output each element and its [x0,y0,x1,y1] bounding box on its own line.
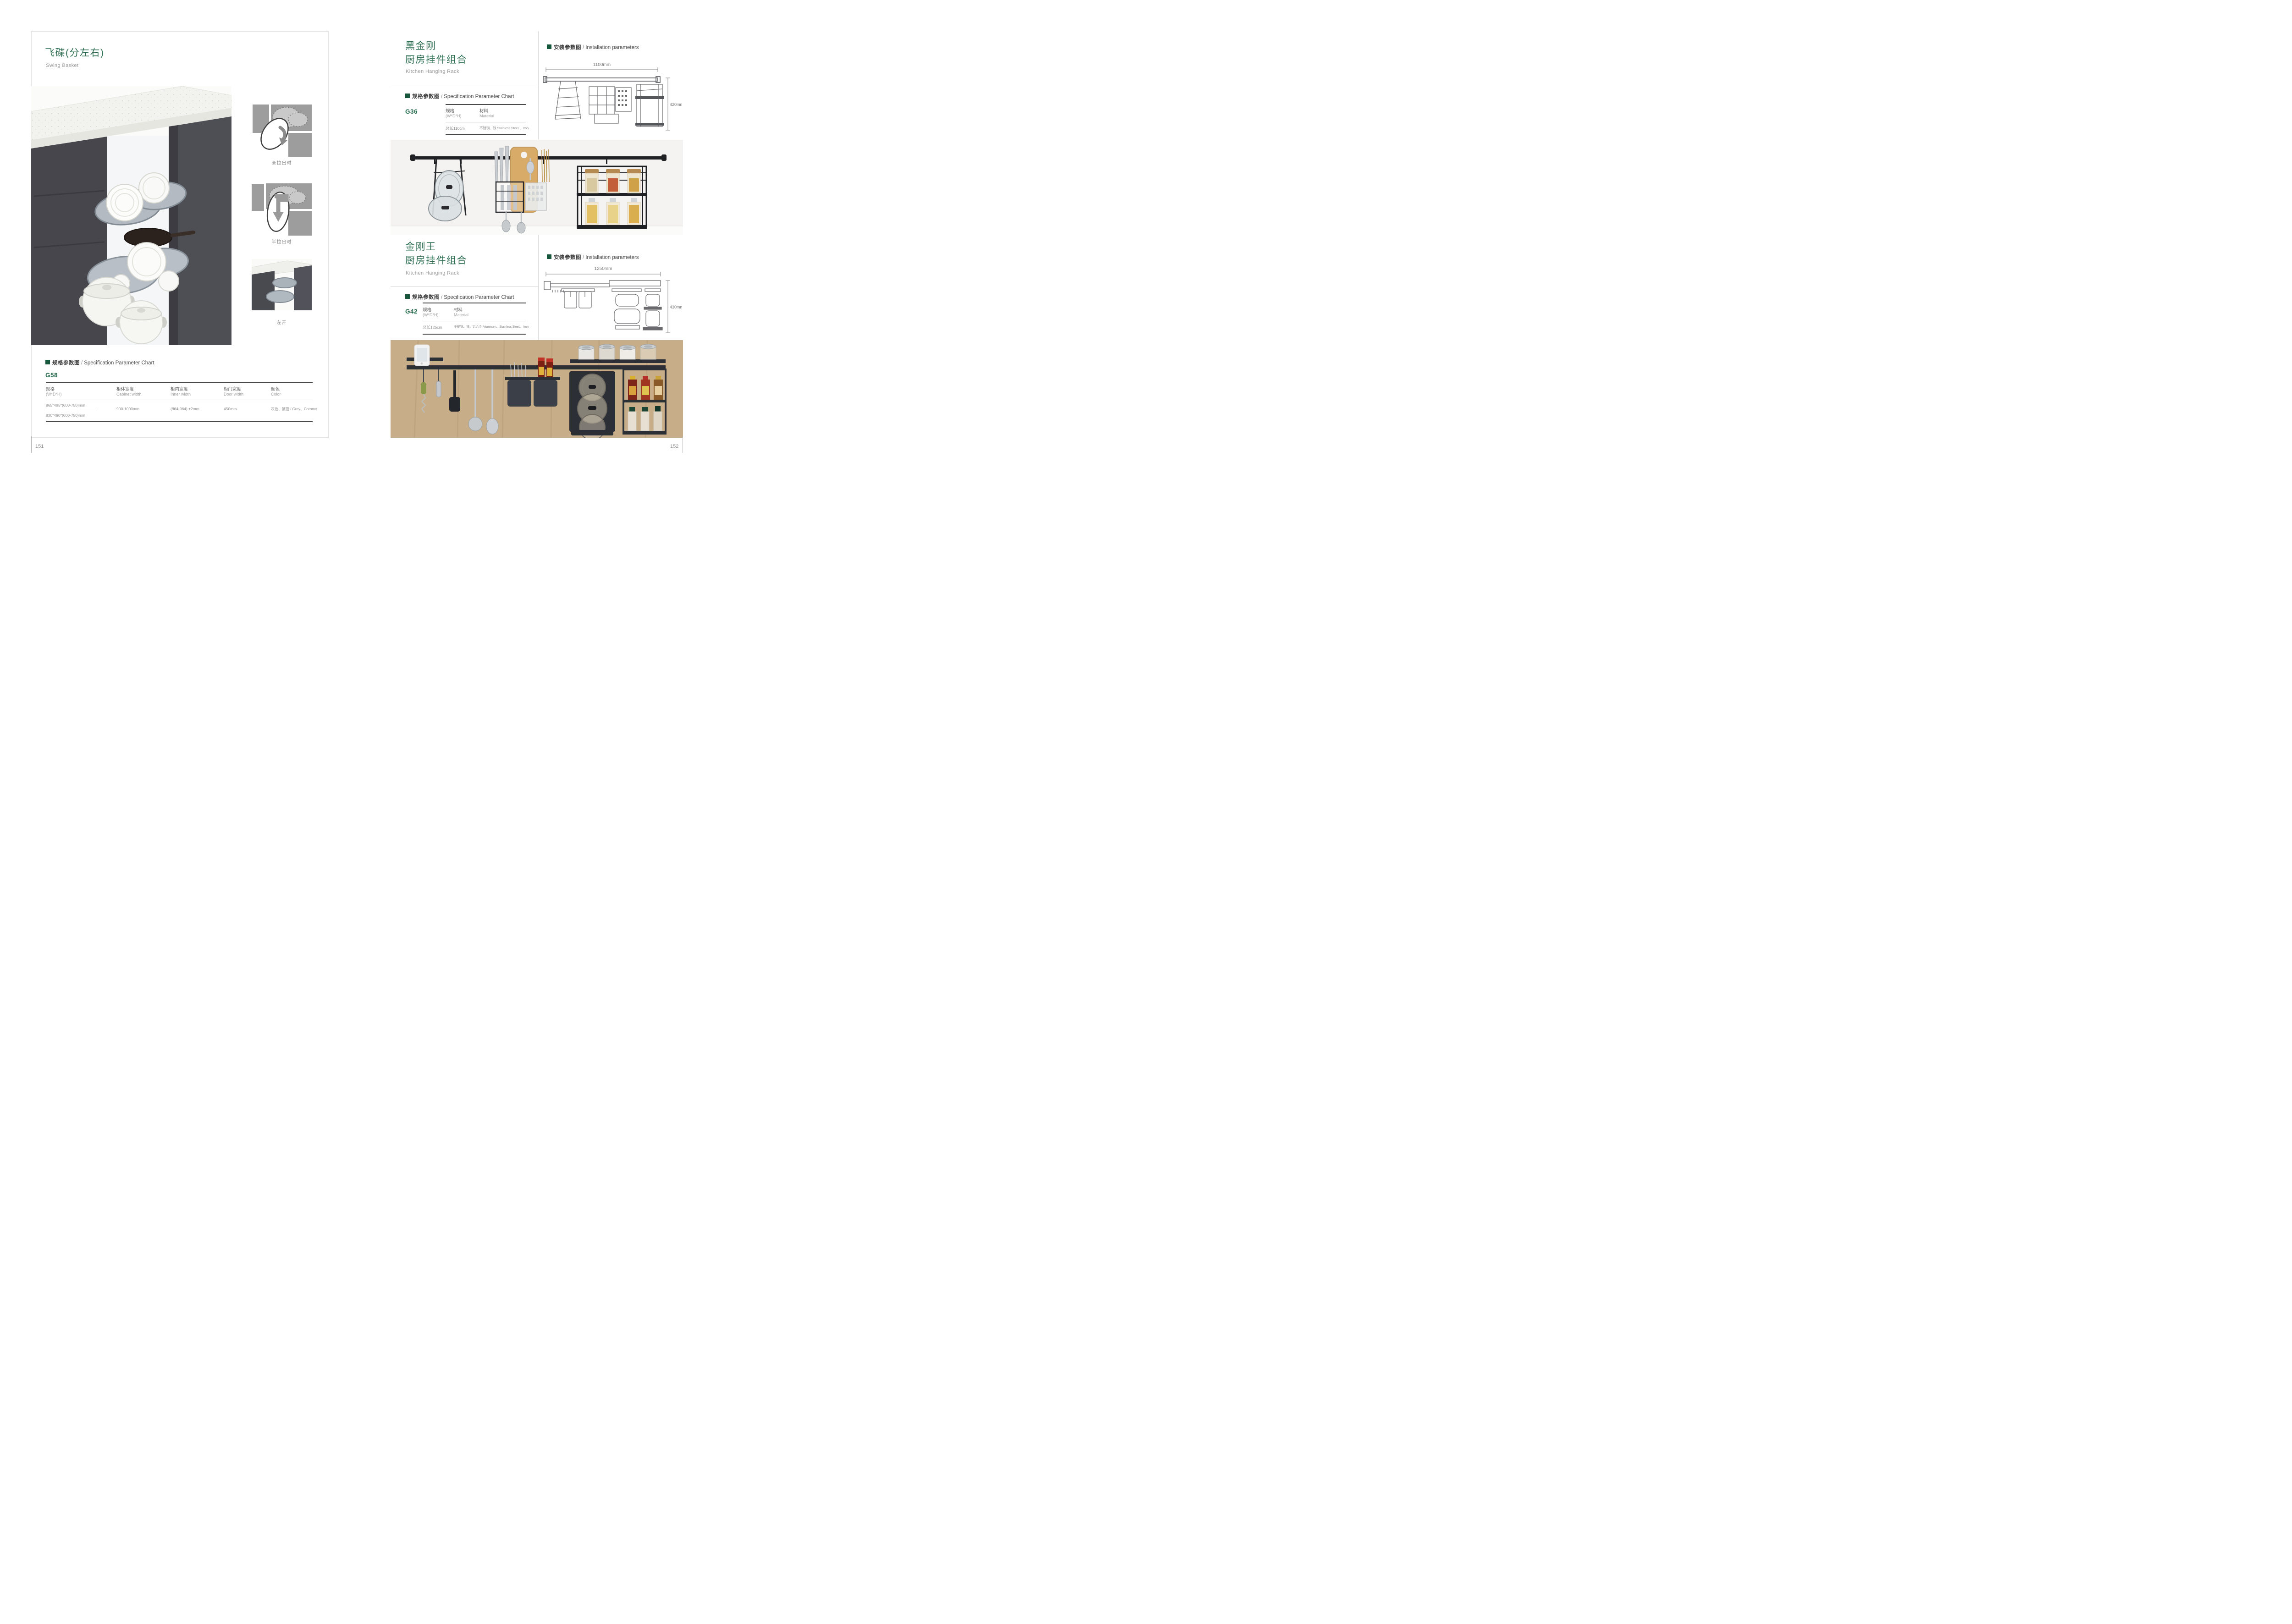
cup-holder-drawing [562,289,595,308]
spec-header-en: Specification Parameter Chart [84,360,154,366]
section1-title-line2: 厨房挂件组合 [405,53,467,67]
table1-mid-rule [446,122,526,122]
grid-divider-horizontal-2 [391,286,538,287]
section-marker-icon [45,360,50,364]
section2-title-line1: 金刚王 [405,240,467,254]
dim-height-label: 420mm [670,102,682,107]
page-number-right: 152 [670,444,678,449]
section1-title: 黑金刚 厨房挂件组合 [405,39,467,67]
section2-subtitle: Kitchen Hanging Rack [406,270,459,276]
dim-width-label: 1250mm [595,266,612,271]
spec-value: 总长110cm [446,126,465,131]
col-spec-cn: 规格 [46,385,55,392]
table-bottom-rule [46,421,313,422]
install-diagram-1: 1100mm [543,61,682,138]
section1-title-line1: 黑金刚 [405,39,467,53]
hook-panel-drawing [589,87,618,123]
section-marker-icon [547,254,551,259]
page-right: 黑金刚 厨房挂件组合 Kitchen Hanging Rack 安装参数图/In… [391,31,683,438]
table1-bottom-rule [446,134,526,135]
mini-diagram-half-pullout [252,183,312,236]
col-cabinet-cn: 柜体宽度 [116,385,134,392]
section1-subtitle: Kitchen Hanging Rack [406,69,459,74]
dim-height-label: 430mm [670,305,682,309]
knives [495,146,509,182]
door-width-value: 450mm [224,407,237,411]
phone-on-shelf [414,345,430,366]
cabinet-width-value: 900-1000mm [116,407,139,411]
pagenum-tick [31,436,32,453]
install-header-en: Installation parameters [585,45,639,50]
spec-chart-header-1: 规格参数图/Specification Parameter Chart [412,92,514,100]
catalog-spread: 飞碟(分左右) Swing Basket [0,0,716,467]
model-code: G36 [405,108,418,115]
pagenum-tick [683,436,683,453]
col-material-en: Material [454,313,468,317]
lid-holder-drawing [612,289,641,329]
mini-photo-left-open [252,259,312,310]
page-title: 飞碟(分左右) [45,46,105,60]
main-product-photo [31,86,231,345]
mini-caption: 左开 [252,319,312,325]
install-header-cn: 安装参数图 [554,45,581,50]
col-spec-cn: 规格 [423,306,431,313]
spec-header-cn: 规格参数图 [412,94,440,99]
spec-header-en: Specification Parameter Chart [444,295,514,300]
jars-bottom [585,198,640,225]
table2-bottom-rule [423,334,526,335]
spice-rack-drawing [635,84,664,127]
header-slash: / [440,295,444,300]
col-cabinet-en: Cabinet width [116,392,142,396]
sauce-bottles [628,376,663,400]
header-slash: / [581,255,585,260]
page-number-left: 151 [35,444,44,449]
model-code: G42 [405,308,418,315]
mini-caption: 全拉出时 [252,159,312,166]
col-door-en: Door width [224,392,243,396]
grid-divider-horizontal-1 [391,86,538,86]
dim-width-label: 1100mm [593,62,611,67]
spec-value-2: 830*490*(600-750)mm [46,413,85,418]
table-top-rule [46,382,313,383]
table-mid-rule [46,400,313,400]
rack-drawing [643,289,662,330]
grid-divider-vertical-2 [538,235,539,340]
spec-chart-header-2: 规格参数图/Specification Parameter Chart [412,293,514,301]
col-color-cn: 颜色 [271,385,280,392]
material-value: 不锈钢、铁 Stainless SteeL、Iron [479,126,529,131]
col-material-cn: 材料 [454,306,463,313]
spec-split-rule [46,410,98,410]
col-spec-cn: 规格 [446,107,454,114]
section-marker-icon [405,94,410,98]
header-slash: / [80,360,84,366]
install-header-1: 安装参数图/Installation parameters [554,43,639,51]
color-value: 灰色、镀铬 / Grey、Chrome [271,407,317,412]
install-diagram-2: 1250mm [543,264,682,339]
install-header-cn: 安装参数图 [554,255,581,260]
mini-diagram-full-pullout [252,105,312,157]
col-spec-en: (W*D*H) [423,313,439,317]
col-material-en: Material [479,114,494,118]
section-marker-icon [547,44,551,49]
lid-holder-drawing [555,81,581,119]
col-material-cn: 材料 [479,107,488,114]
header-slash: / [440,94,444,99]
page-subtitle: Swing Basket [46,63,78,68]
col-color-en: Color [271,392,281,396]
spec-header-cn: 规格参数图 [52,360,80,366]
pepper-grinders [628,406,662,431]
dim-width [546,272,661,276]
col-inner-cn: 柜内宽度 [171,385,188,392]
spec-value-1: 865*495*(600-750)mm [46,403,85,407]
table2-mid-rule [423,321,526,321]
col-inner-en: Inner width [171,392,191,396]
model-code: G58 [45,372,58,379]
section-marker-icon [405,294,410,299]
dim-width [546,67,658,72]
spec-header-en: Specification Parameter Chart [444,94,514,99]
section2-title: 金刚王 厨房挂件组合 [405,240,467,268]
table1-top-rule [446,104,526,105]
grid-divider-vertical-1 [538,31,539,140]
table2-top-rule [423,303,526,303]
install-header-2: 安装参数图/Installation parameters [554,253,639,261]
product-photo-black-rack [391,140,683,235]
chopstick-box [525,183,546,210]
lid-rack-panel [569,371,615,438]
col-door-cn: 柜门宽度 [224,385,241,392]
product-photo-wood-rack [391,340,683,438]
col-spec-en: (W*D*H) [46,392,62,396]
material-value: 不锈钢、铁、铝合金 Aluminum、Stainless SteeL、Iron [454,325,529,329]
header-slash: / [581,45,585,50]
spec-header-cn: 规格参数图 [412,295,440,300]
utensil-basket [496,182,523,212]
col-spec-en: (W*D*H) [446,114,462,118]
section2-title-line2: 厨房挂件组合 [405,254,467,268]
perforated-basket-drawing [616,88,631,111]
spec-chart-header: 规格参数图/Specification Parameter Chart [52,358,154,367]
mini-caption: 半拉出时 [252,238,312,245]
install-header-en: Installation parameters [585,255,639,260]
spec-value: 总长125cm [423,325,442,330]
jars-top [585,169,641,193]
inner-width-value: (864-964) ±2mm [171,407,199,411]
page-left: 飞碟(分左右) Swing Basket [31,31,329,438]
